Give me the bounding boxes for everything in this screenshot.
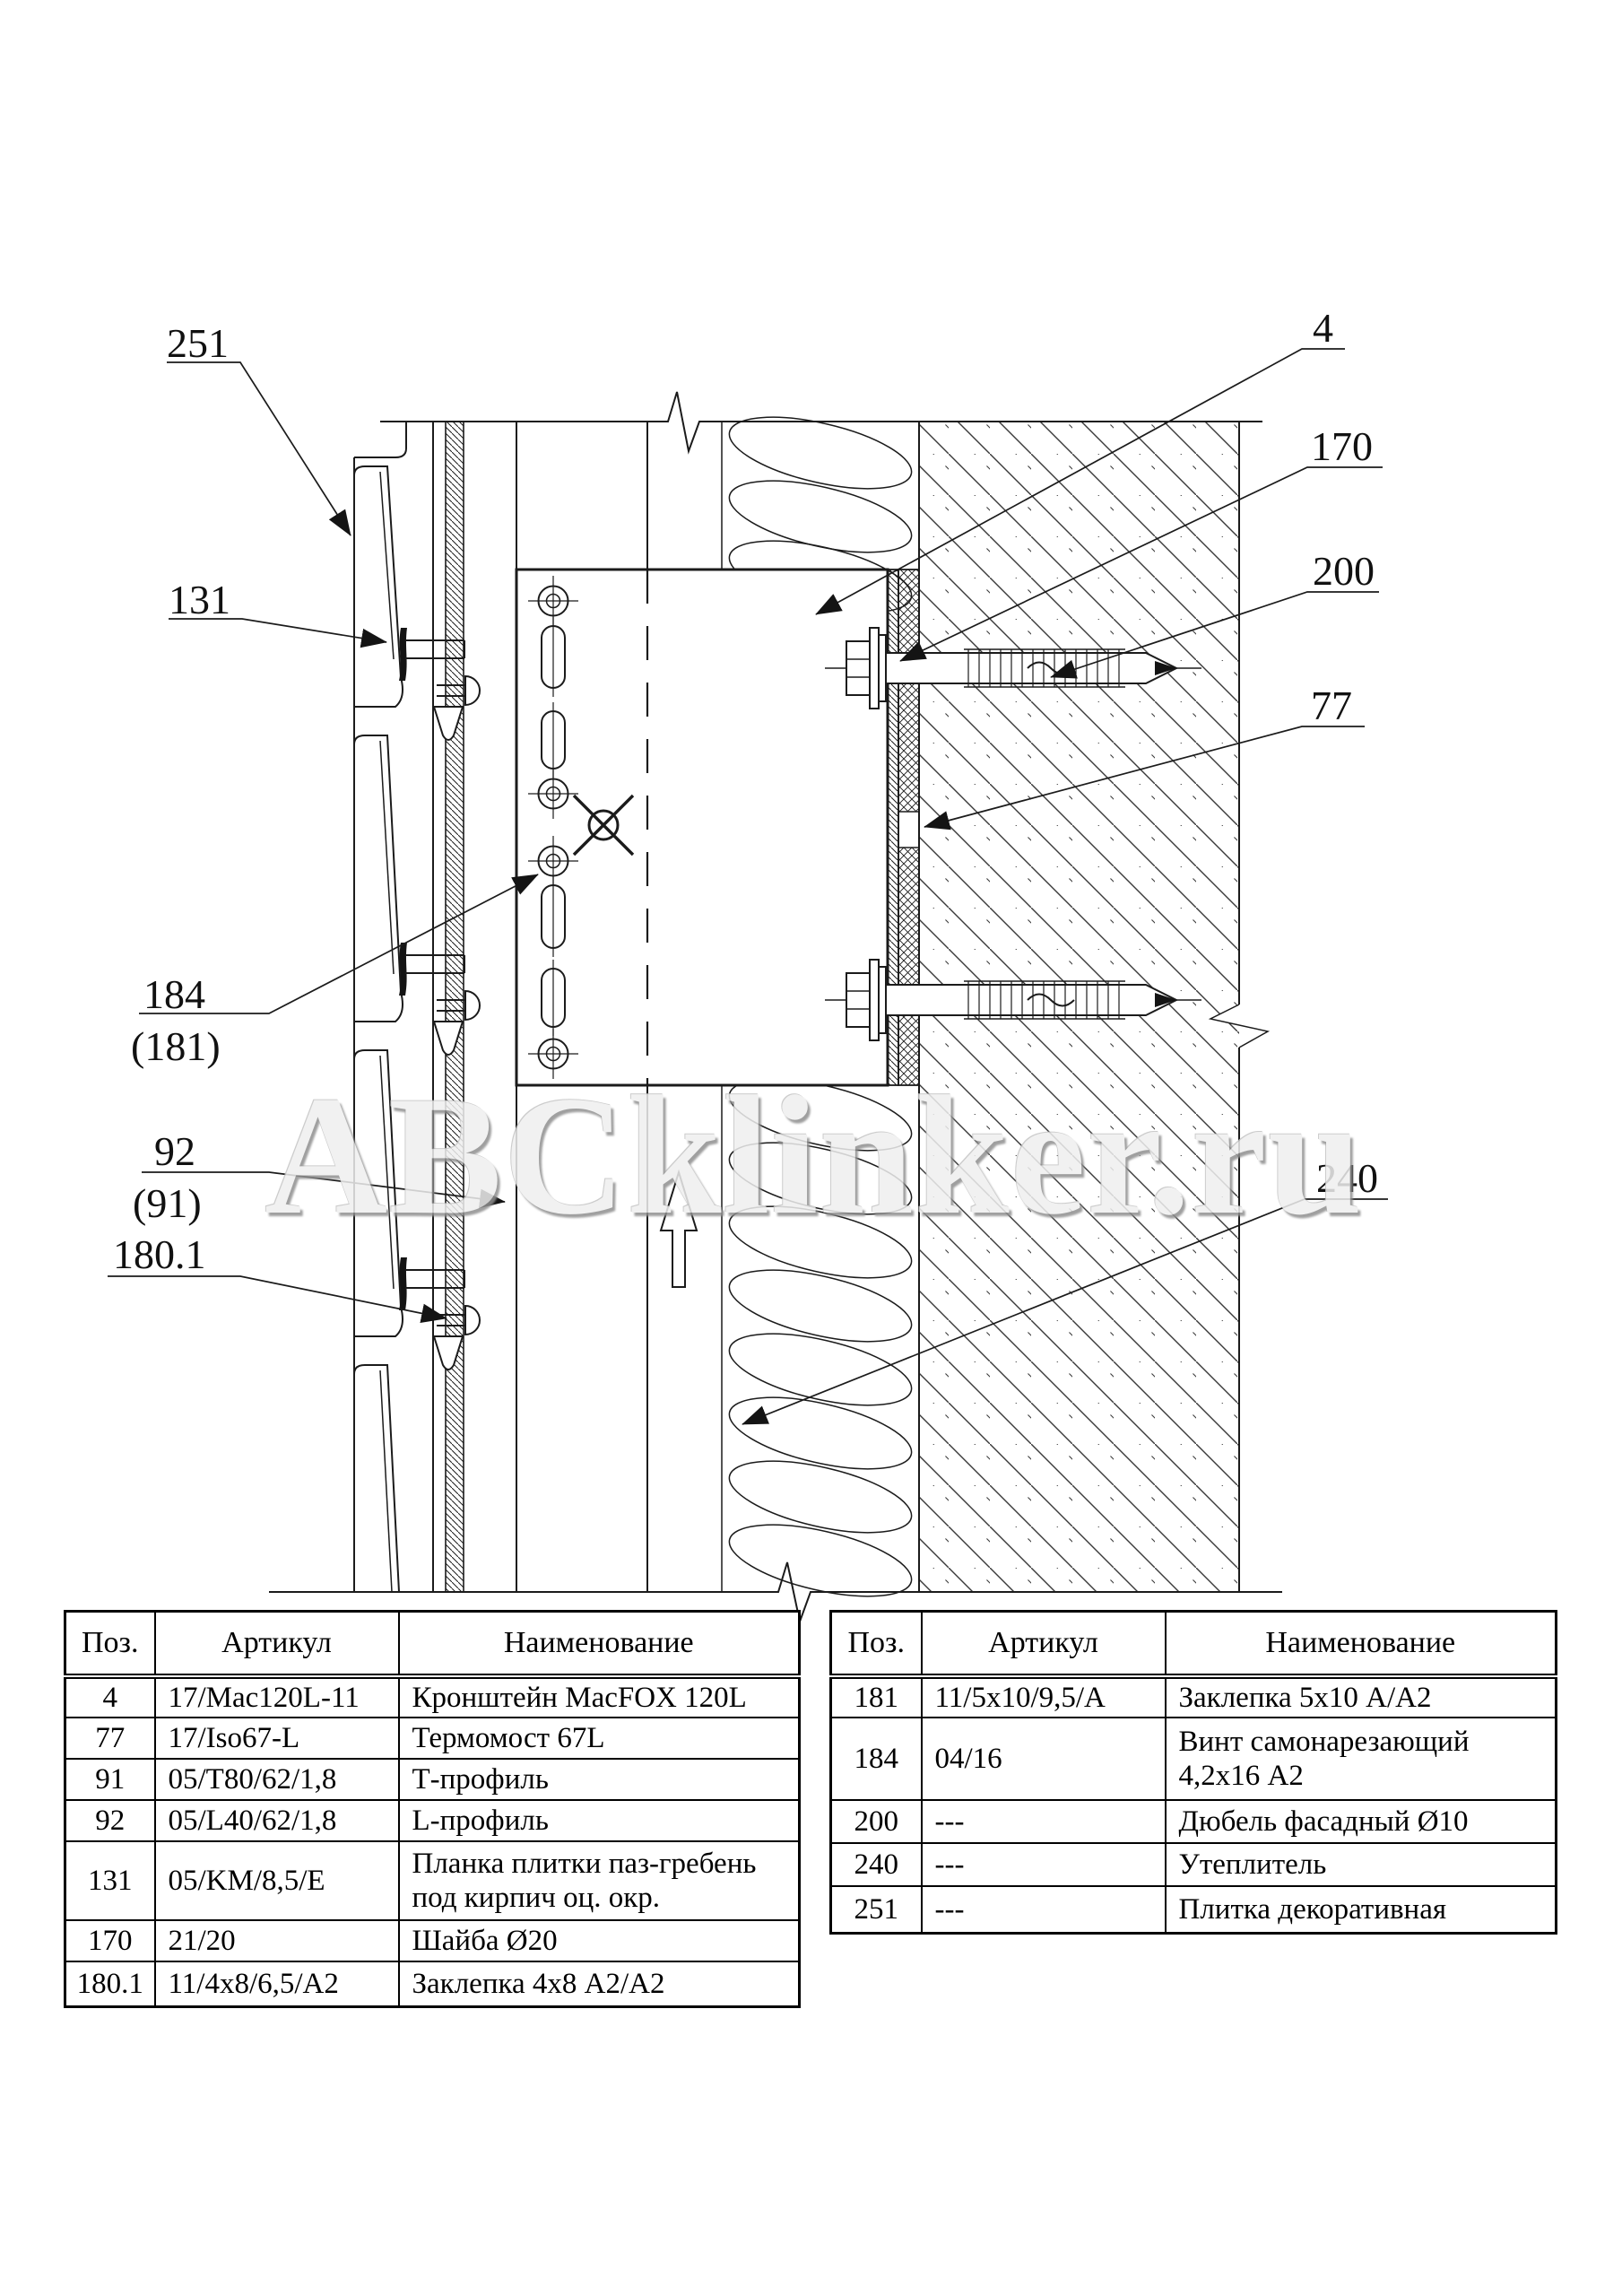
label-170: 170 (1311, 423, 1373, 469)
pos-cell: 4 (65, 1676, 155, 1718)
header-name: Наименование (1166, 1612, 1557, 1676)
label-131: 131 (169, 577, 230, 622)
t-profile-flange (446, 422, 464, 1592)
name-cell: Т-профиль (399, 1759, 800, 1800)
label-77: 77 (1311, 683, 1352, 728)
header-pos: Поз. (831, 1612, 922, 1676)
tiles (354, 422, 406, 1592)
header-pos: Поз. (65, 1612, 155, 1676)
name-cell: Дюбель фасадный Ø10 (1166, 1800, 1557, 1843)
header-art: Артикул (155, 1612, 399, 1676)
pos-cell: 180.1 (65, 1961, 155, 2006)
label-251: 251 (167, 320, 229, 366)
name-cell: Заклепка 4x8 А2/А2 (399, 1961, 800, 2006)
watermark: ABCklinker.ru (265, 1058, 1363, 1254)
table-row: 251 --- Плитка декоративная (831, 1886, 1557, 1933)
article-cell: 11/4x8/6,5/A2 (155, 1961, 399, 2006)
name-cell: Планка плитки паз-гребень под кирпич оц.… (399, 1841, 800, 1920)
article-cell: 17/Mac120L-11 (155, 1676, 399, 1718)
article-cell: --- (922, 1843, 1166, 1886)
tile-inner-line (380, 741, 394, 974)
header-name: Наименование (399, 1612, 800, 1676)
pos-cell: 131 (65, 1841, 155, 1920)
table-row: 91 05/T80/62/1,8 Т-профиль (65, 1759, 800, 1800)
name-cell: L-профиль (399, 1800, 800, 1841)
pos-cell: 92 (65, 1800, 155, 1841)
table-row: 92 05/L40/62/1,8 L-профиль (65, 1800, 800, 1841)
header-art: Артикул (922, 1612, 1166, 1676)
leader-180-1 (108, 1276, 447, 1318)
tile-clip (399, 943, 480, 1055)
table-header-row: Поз. Артикул Наименование (65, 1612, 800, 1676)
table-row: 77 17/Iso67-L Термомост 67L (65, 1718, 800, 1759)
name-cell: Кронштейн MacFOX 120L (399, 1676, 800, 1718)
tile-stub (354, 422, 406, 457)
label-4: 4 (1313, 305, 1333, 351)
pos-cell: 200 (831, 1800, 922, 1843)
parts-table-right: Поз. Артикул Наименование 181 11/5x10/9,… (829, 1610, 1557, 1935)
tile (354, 735, 403, 1022)
tile (354, 466, 403, 707)
name-cell: Заклепка 5x10 А/А2 (1166, 1676, 1557, 1718)
bracket-plate (516, 570, 888, 1085)
pos-cell: 251 (831, 1886, 922, 1933)
label-200: 200 (1313, 548, 1375, 594)
name-cell: Утеплитель (1166, 1843, 1557, 1886)
pos-cell: 240 (831, 1843, 922, 1886)
pos-cell: 77 (65, 1718, 155, 1759)
article-cell: 05/T80/62/1,8 (155, 1759, 399, 1800)
article-cell: 04/16 (922, 1718, 1166, 1800)
article-cell: 17/Iso67-L (155, 1718, 399, 1759)
table-row: 184 04/16 Винт самонарезающий 4,2x16 А2 (831, 1718, 1557, 1800)
article-cell: --- (922, 1800, 1166, 1843)
pos-cell: 181 (831, 1676, 922, 1718)
table-row: 200 --- Дюбель фасадный Ø10 (831, 1800, 1557, 1843)
label-181: (181) (131, 1023, 221, 1069)
article-cell: 21/20 (155, 1920, 399, 1961)
name-cell: Винт самонарезающий 4,2x16 А2 (1166, 1718, 1557, 1800)
name-cell: Термомост 67L (399, 1718, 800, 1759)
pos-cell: 91 (65, 1759, 155, 1800)
parts-table-left: Поз. Артикул Наименование 4 17/Mac120L-1… (64, 1610, 801, 2008)
label-184: 184 (143, 971, 205, 1017)
table-row: 240 --- Утеплитель (831, 1843, 1557, 1886)
label-91: (91) (133, 1180, 202, 1226)
tile-inner-line (380, 472, 394, 659)
table-row: 181 11/5x10/9,5/A Заклепка 5x10 А/А2 (831, 1676, 1557, 1718)
pos-cell: 184 (831, 1718, 922, 1800)
tile-clip (399, 628, 480, 740)
name-cell: Шайба Ø20 (399, 1920, 800, 1961)
table-row: 131 05/KM/8,5/E Планка плитки паз-гребен… (65, 1841, 800, 1920)
label-180-1: 180.1 (113, 1231, 206, 1277)
drawing-sheet: { "watermark": "ABCklinker.ru", "drawing… (0, 0, 1622, 2296)
tile (354, 1365, 399, 1592)
label-92: 92 (154, 1128, 195, 1174)
name-cell: Плитка декоративная (1166, 1886, 1557, 1933)
table-row: 180.1 11/4x8/6,5/A2 Заклепка 4x8 А2/А2 (65, 1961, 800, 2006)
leader-251 (167, 362, 351, 535)
article-cell: --- (922, 1886, 1166, 1933)
tile-clip (399, 1257, 480, 1370)
table-row: 170 21/20 Шайба Ø20 (65, 1920, 800, 1961)
article-cell: 05/L40/62/1,8 (155, 1800, 399, 1841)
article-cell: 11/5x10/9,5/A (922, 1676, 1166, 1718)
pos-cell: 170 (65, 1920, 155, 1961)
table-row: 4 17/Mac120L-11 Кронштейн MacFOX 120L (65, 1676, 800, 1718)
article-cell: 05/KM/8,5/E (155, 1841, 399, 1920)
table-header-row: Поз. Артикул Наименование (831, 1612, 1557, 1676)
